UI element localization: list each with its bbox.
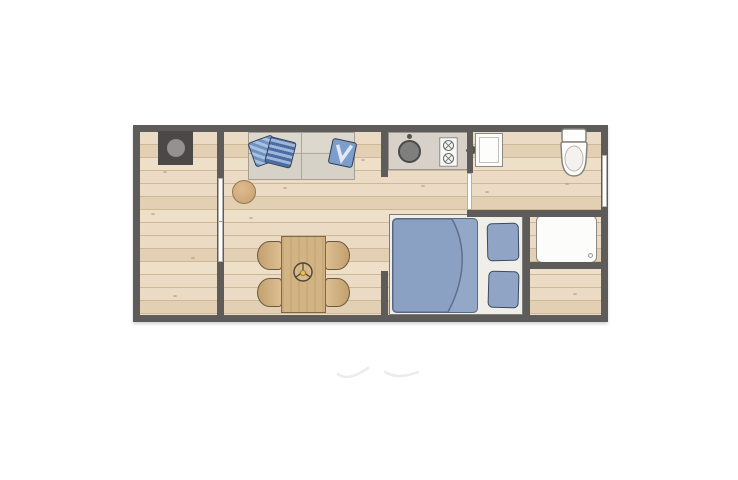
shower-drain (588, 253, 593, 258)
floor-knot (173, 295, 177, 297)
sliding-door (218, 178, 223, 262)
bathroom-wall-vertical (467, 132, 473, 173)
window-right-wall (602, 155, 607, 207)
floor-knot (485, 191, 489, 193)
sofa-cushion-chevron (328, 138, 358, 169)
wood-stove (158, 131, 193, 165)
floor-knot (249, 217, 253, 219)
dining-chair (257, 241, 282, 270)
kitchen-faucet (407, 134, 412, 139)
floor-knot (565, 183, 569, 185)
exterior-wall-left (133, 125, 140, 322)
watermark-marks (330, 364, 425, 386)
floor-knot (191, 257, 195, 259)
floor-knot (151, 213, 155, 215)
dining-chair (257, 278, 282, 307)
shower-wall-horizontal (523, 262, 608, 269)
sofa-center-seam (301, 133, 302, 179)
pocket-door (467, 173, 472, 210)
bed-pillow (487, 223, 520, 262)
floor-knot (421, 185, 425, 187)
floor-knot (163, 171, 167, 173)
floor-knot (573, 293, 577, 295)
exterior-wall-top (133, 125, 608, 132)
exterior-wall-bottom (133, 315, 608, 322)
two-burner-hob (439, 137, 458, 167)
bed-foot-wall-stub (381, 271, 388, 315)
toilet (558, 128, 590, 180)
wash-basin (475, 133, 503, 167)
floor-plan-image (0, 0, 738, 480)
bed-pillow (488, 271, 520, 309)
dining-chair (325, 241, 350, 270)
basin-bowl (479, 137, 499, 163)
kitchen-sink (398, 140, 421, 163)
side-table (232, 180, 256, 204)
kitchen-wall (381, 132, 388, 177)
floor-plan (133, 125, 608, 322)
wood-plank-floor (140, 132, 601, 315)
floor-knot (283, 187, 287, 189)
bathroom-wall-horizontal (467, 210, 608, 217)
stove-plate (167, 139, 185, 157)
table-centerpiece (292, 261, 314, 283)
bed-duvet (392, 218, 478, 313)
floor-knot (361, 159, 365, 161)
dining-chair (325, 278, 350, 307)
sliding-door-seam (219, 221, 222, 222)
